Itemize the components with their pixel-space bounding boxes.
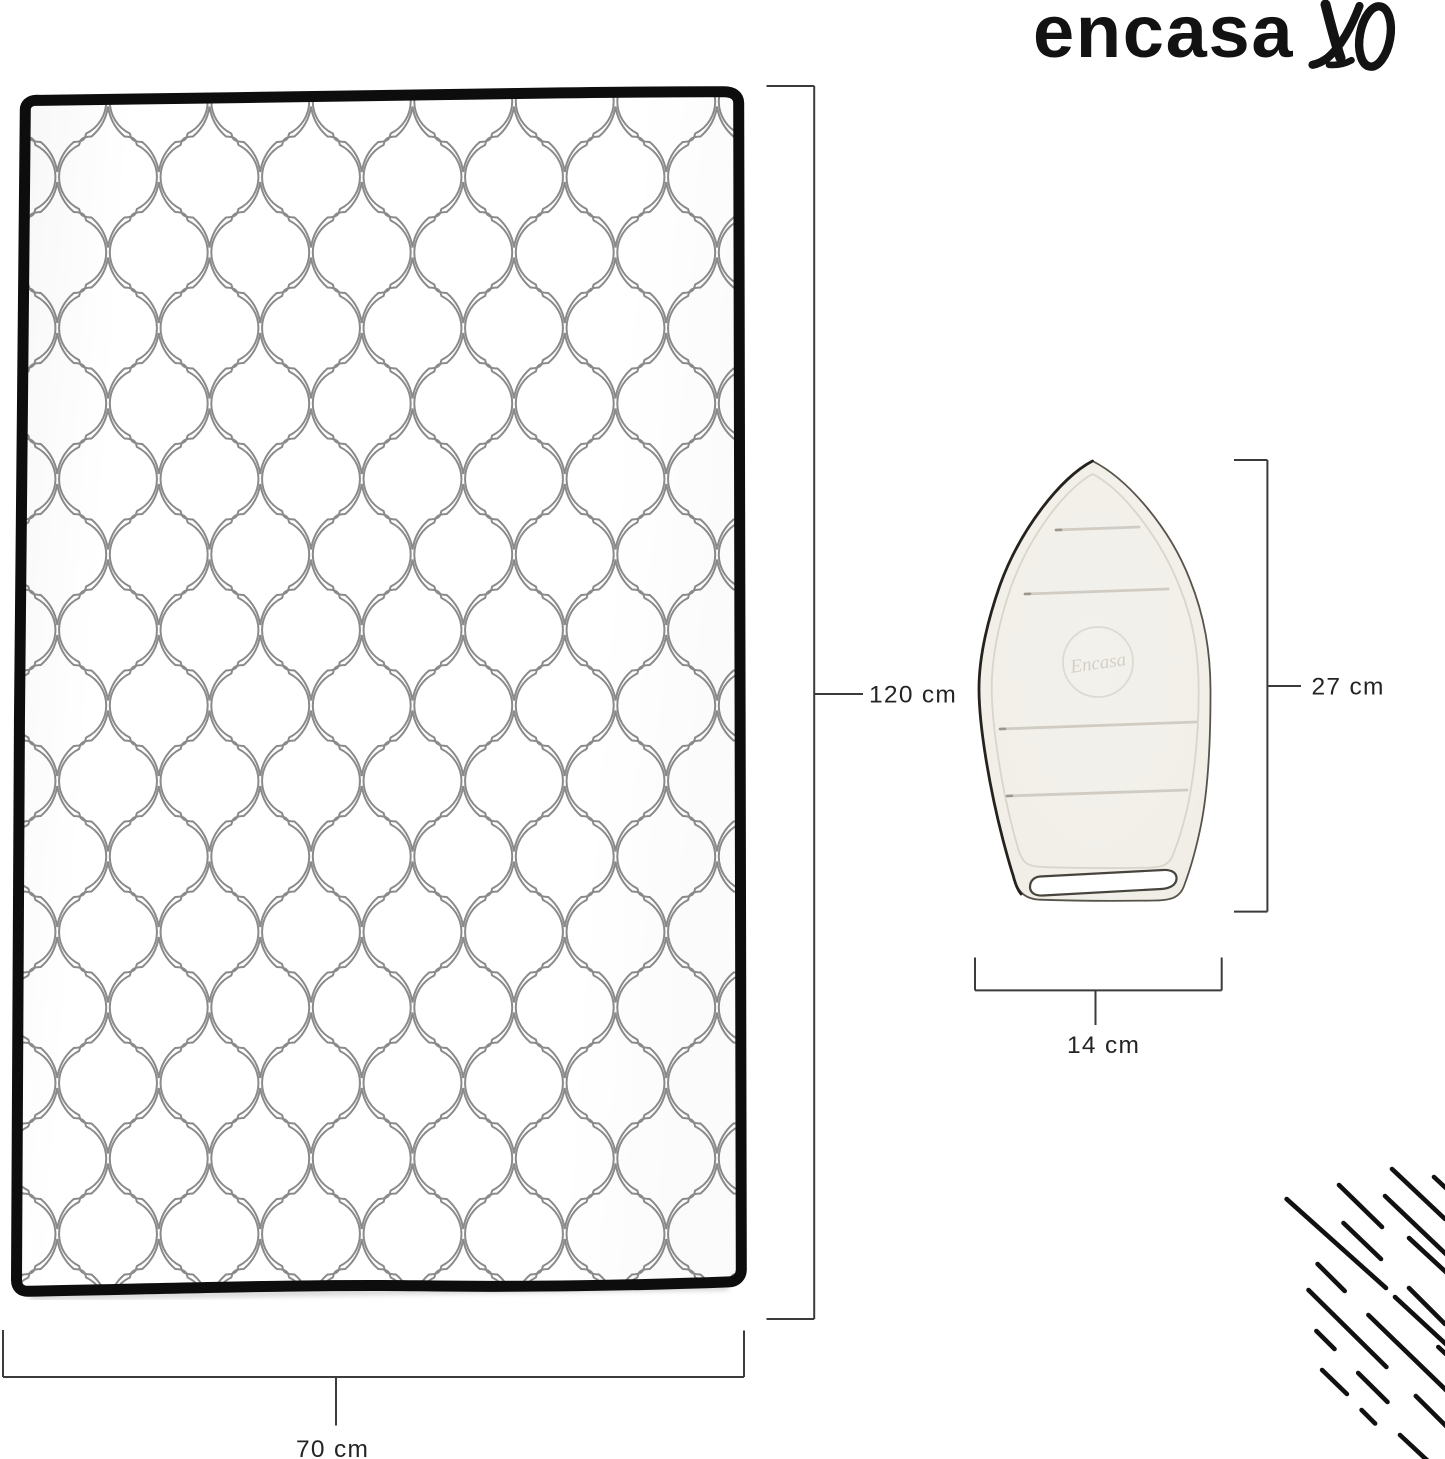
svg-text:70 cm: 70 cm <box>296 1436 369 1459</box>
svg-text:14 cm: 14 cm <box>1067 1032 1140 1059</box>
svg-text:120 cm: 120 cm <box>869 682 957 709</box>
svg-text:encasa: encasa <box>1033 0 1294 73</box>
svg-text:27 cm: 27 cm <box>1312 674 1385 701</box>
